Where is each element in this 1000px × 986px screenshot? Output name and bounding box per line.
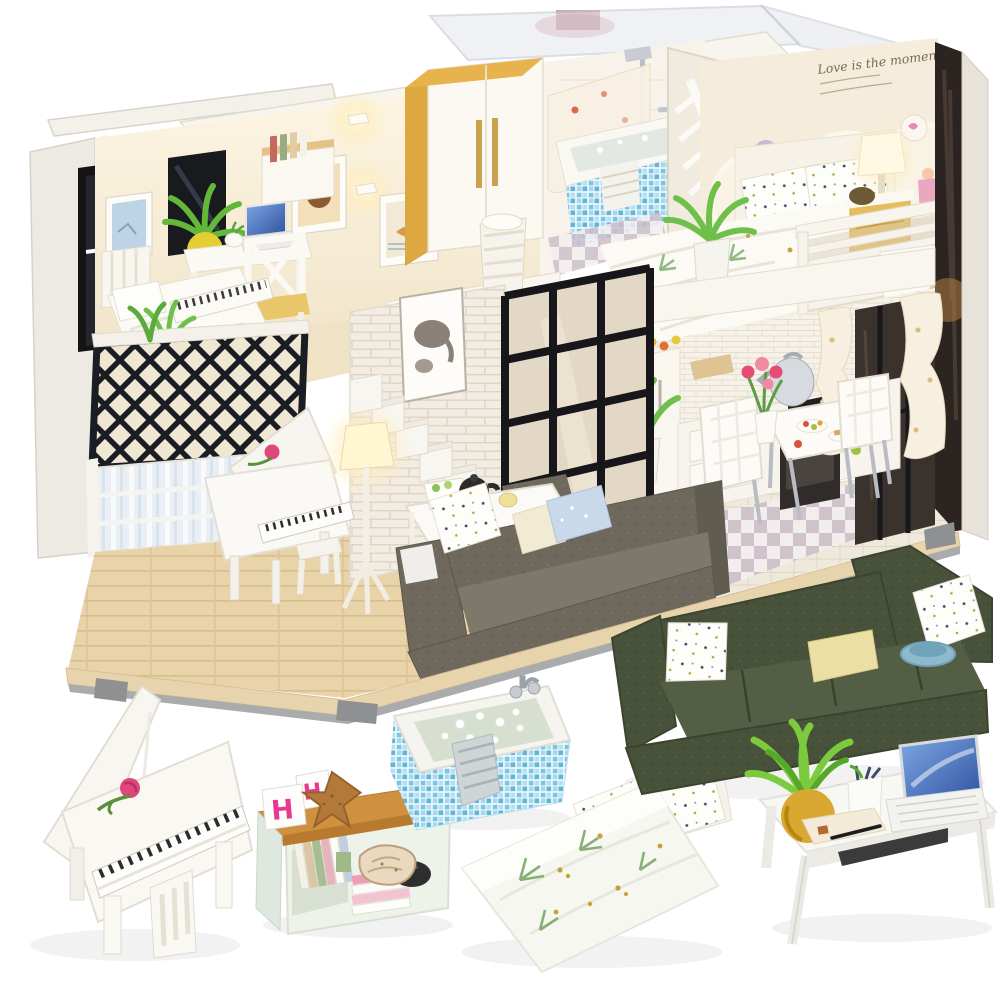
right-wall xyxy=(926,42,988,540)
dollhouse-illustration: Love is the moment xyxy=(0,0,1000,986)
conch-shell xyxy=(359,845,415,884)
woven-basket xyxy=(849,187,875,205)
mini-laptop xyxy=(246,202,286,237)
doll-figure xyxy=(922,168,934,180)
wardrobe-handle xyxy=(492,118,498,186)
base-foot xyxy=(336,700,378,724)
product-photo: Love is the moment xyxy=(0,0,1000,986)
base-foot xyxy=(94,678,128,702)
piano-leg xyxy=(70,848,84,900)
tea-cup xyxy=(499,493,517,507)
piano-leg xyxy=(216,842,232,908)
green-cup xyxy=(336,852,351,872)
piano-leg xyxy=(104,896,121,954)
letter-cube-h: H xyxy=(270,794,295,827)
pink-rose xyxy=(265,445,280,460)
towel-basket xyxy=(480,214,526,296)
elephant-print xyxy=(400,288,466,402)
closeup-piano xyxy=(44,686,252,958)
bedside-lamp xyxy=(858,132,906,176)
wardrobe-handle xyxy=(476,120,482,188)
towel-stack xyxy=(600,160,640,212)
sofa-pillow-dotted xyxy=(658,613,735,691)
